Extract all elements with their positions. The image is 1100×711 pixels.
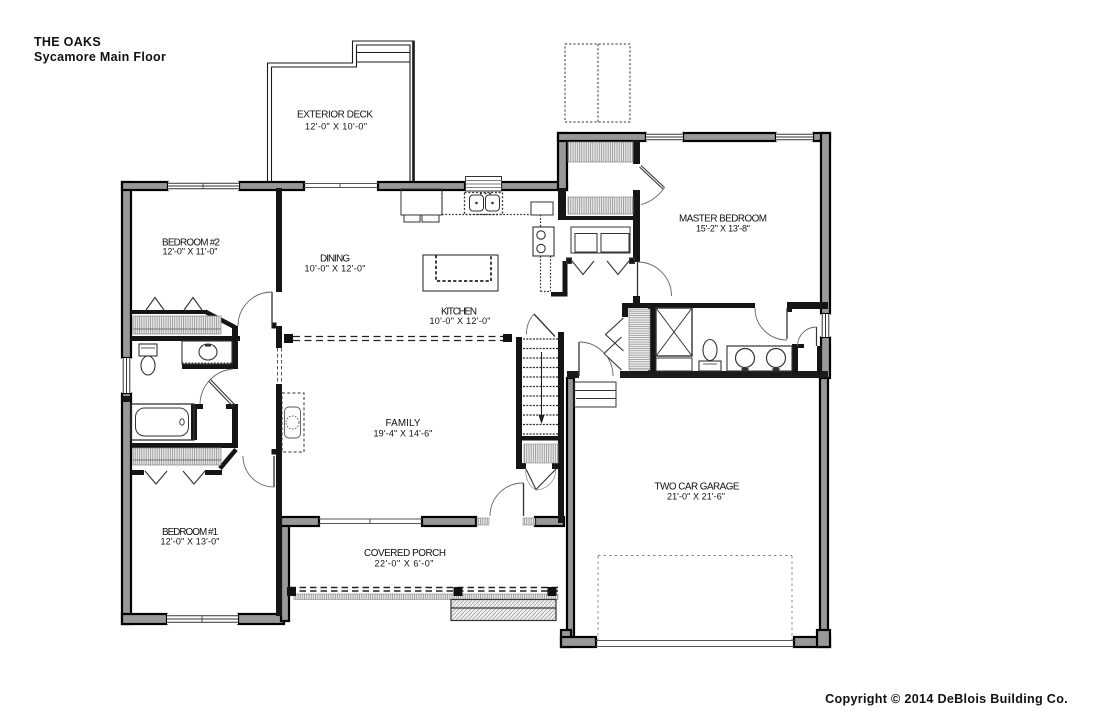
svg-text:15'-2" X 13'-8": 15'-2" X 13'-8" (696, 224, 750, 234)
svg-text:Sycamore Main Floor: Sycamore Main Floor (34, 50, 166, 64)
svg-text:19'-4" X 14'-6": 19'-4" X 14'-6" (374, 429, 433, 439)
svg-text:21'-0" X 21'-6": 21'-0" X 21'-6" (667, 492, 725, 502)
svg-text:Copyright © 2014 DeBlois Build: Copyright © 2014 DeBlois Building Co. (825, 692, 1068, 706)
svg-text:12'-0" X 11'-0": 12'-0" X 11'-0" (163, 247, 218, 257)
svg-text:10'-0" X 12'-0": 10'-0" X 12'-0" (430, 316, 491, 326)
svg-text:EXTERIOR DECK: EXTERIOR DECK (297, 110, 373, 121)
svg-text:FAMILY: FAMILY (386, 418, 421, 429)
svg-text:COVERED PORCH: COVERED PORCH (364, 548, 446, 559)
svg-text:THE OAKS: THE OAKS (34, 35, 101, 49)
svg-text:12'-0" X 10'-0": 12'-0" X 10'-0" (305, 122, 367, 132)
svg-text:12'-0" X 13'-0": 12'-0" X 13'-0" (161, 537, 220, 547)
svg-text:22'-0" X 6'-0": 22'-0" X 6'-0" (375, 559, 434, 569)
svg-text:10'-0" X 12'-0": 10'-0" X 12'-0" (305, 264, 366, 274)
